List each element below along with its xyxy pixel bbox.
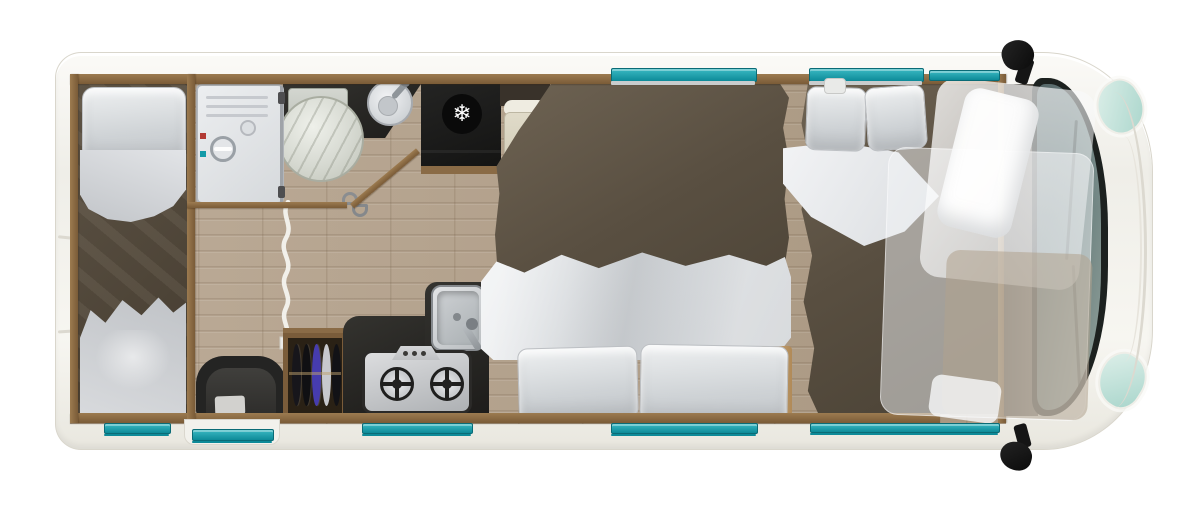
wall-bathroom (187, 202, 347, 208)
window-trim (810, 433, 998, 435)
front-bed-pillow (864, 84, 928, 152)
window-trim (362, 434, 471, 436)
wall-bedroom-divider (187, 74, 195, 423)
entrance-door-window (192, 429, 274, 441)
wardrobe-rail (289, 372, 341, 375)
window-trim (611, 434, 756, 436)
motorhome-floorplan: ❄ (0, 0, 1200, 514)
shower-indicator-hot (200, 133, 206, 139)
window (611, 423, 758, 434)
shower-ridge (206, 96, 268, 99)
hob-knob (403, 351, 408, 356)
wall-rear (70, 74, 78, 423)
hanging-clothes (322, 344, 331, 406)
shower-drain (240, 120, 256, 136)
shower-tray (196, 84, 284, 204)
hanging-clothes (302, 344, 311, 406)
shower-door-hinge (278, 92, 285, 104)
toilet-bowl (278, 96, 364, 182)
window (611, 68, 757, 82)
window (362, 423, 473, 434)
window (810, 423, 1000, 433)
burner-cap (442, 379, 452, 389)
window (104, 423, 171, 434)
shower-ridge (206, 105, 268, 108)
bed-catch-box (824, 78, 846, 94)
window (929, 70, 1000, 81)
middle-bed-pillow (517, 345, 639, 420)
middle-bed-pillow (639, 344, 788, 423)
window-sill (611, 81, 755, 85)
fridge-snowflake-icon: ❄ (442, 94, 482, 134)
hanging-clothes (292, 344, 301, 406)
shower-mixer-lever (214, 147, 232, 151)
shower-door-hinge (278, 186, 285, 198)
front-bed-pillow (805, 86, 867, 152)
washbasin-drain (378, 96, 398, 116)
hob-knob (412, 351, 417, 356)
hanging-clothes (312, 344, 321, 406)
window-trim (192, 441, 272, 443)
hob-knob (421, 351, 426, 356)
kitchen-sink-drain (453, 313, 461, 321)
fridge-shelf (421, 166, 501, 174)
hanging-clothes (332, 344, 341, 406)
rear-bed-top-pillow (82, 87, 186, 161)
shower-indicator-cold (200, 151, 206, 157)
rear-bed-bottom-pillow-highlight (95, 330, 171, 390)
burner-cap (392, 379, 402, 389)
fridge-front-line (421, 150, 501, 153)
shower-ridge (206, 114, 268, 117)
window-trim (104, 434, 169, 436)
kitchen-tap-base (466, 318, 478, 330)
